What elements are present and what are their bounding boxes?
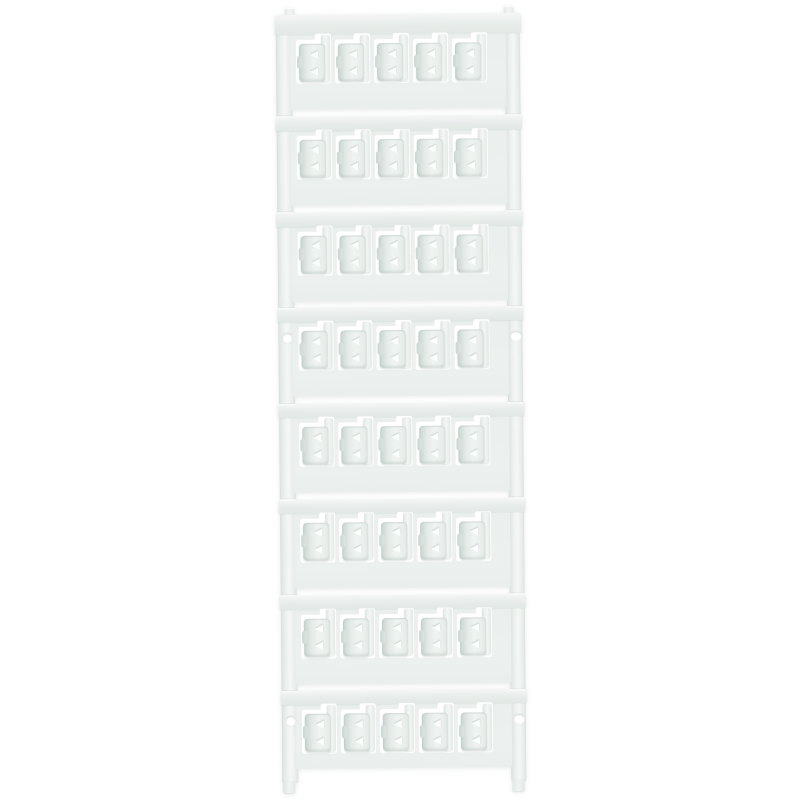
snap-bump bbox=[416, 342, 421, 355]
snap-bump bbox=[340, 534, 345, 547]
detent-notch-icon bbox=[316, 737, 324, 745]
snap-bump bbox=[377, 342, 382, 355]
rail-joint-right bbox=[506, 209, 522, 212]
marker-strip-row bbox=[276, 115, 523, 209]
detent-notch-icon bbox=[316, 720, 324, 728]
detent-notch-icon bbox=[472, 719, 480, 727]
snap-bump bbox=[374, 55, 379, 68]
detent-notch-icon bbox=[315, 642, 323, 650]
marker-tag bbox=[342, 522, 368, 560]
marker-tag bbox=[341, 426, 367, 464]
marker-tag bbox=[305, 714, 331, 752]
snap-bump bbox=[302, 726, 307, 739]
marker-tag bbox=[338, 43, 364, 81]
marker-strip-row bbox=[278, 402, 525, 496]
detent-notch-icon bbox=[390, 258, 398, 266]
mounting-hole-left bbox=[282, 333, 293, 344]
mounting-hole-right bbox=[511, 331, 522, 342]
marker-tag bbox=[302, 427, 328, 465]
snap-bump bbox=[415, 246, 420, 259]
detent-notch-icon bbox=[311, 163, 319, 171]
snap-bump bbox=[375, 151, 380, 164]
detent-notch-icon bbox=[391, 354, 399, 362]
snap-bump bbox=[457, 533, 462, 546]
snap-bump bbox=[298, 247, 303, 260]
marker-strip-row bbox=[275, 19, 522, 113]
marker-tag bbox=[457, 234, 483, 272]
detent-notch-icon bbox=[430, 432, 438, 440]
detent-notch-icon bbox=[353, 529, 361, 537]
mounting-hole-right bbox=[514, 714, 525, 725]
detent-notch-icon bbox=[430, 449, 438, 457]
snap-bump bbox=[337, 247, 342, 260]
rail-joint-left bbox=[282, 690, 298, 693]
detent-notch-icon bbox=[391, 433, 399, 441]
detent-notch-icon bbox=[432, 641, 440, 649]
marker-tag bbox=[382, 617, 408, 655]
snap-bump bbox=[453, 150, 458, 163]
detent-notch-icon bbox=[392, 545, 400, 553]
marker-tag bbox=[460, 617, 486, 655]
snap-bump bbox=[417, 438, 422, 451]
detent-notch-icon bbox=[469, 353, 477, 361]
marker-tag bbox=[416, 43, 442, 81]
detent-notch-icon bbox=[466, 49, 474, 57]
marker-tag bbox=[300, 139, 326, 177]
detent-notch-icon bbox=[389, 145, 397, 153]
marker-tag bbox=[343, 618, 369, 656]
detent-notch-icon bbox=[310, 67, 318, 75]
detent-notch-icon bbox=[469, 449, 477, 457]
rail-joint-left bbox=[278, 307, 294, 310]
detent-notch-icon bbox=[469, 432, 477, 440]
detent-notch-icon bbox=[389, 162, 397, 170]
detent-notch-icon bbox=[467, 162, 475, 170]
mounting-hole-left bbox=[286, 716, 297, 727]
rail-joint-right bbox=[505, 113, 521, 116]
rail-joint-left bbox=[277, 115, 293, 118]
snap-bump bbox=[299, 343, 304, 356]
marker-tag bbox=[299, 44, 325, 82]
snap-bump bbox=[341, 630, 346, 643]
detent-notch-icon bbox=[467, 145, 475, 153]
detent-notch-icon bbox=[394, 737, 402, 745]
detent-notch-icon bbox=[391, 450, 399, 458]
snap-bump bbox=[418, 534, 423, 547]
snap-bump bbox=[376, 247, 381, 260]
marker-tag bbox=[455, 42, 481, 80]
detent-notch-icon bbox=[428, 162, 436, 170]
rail-joint-left bbox=[281, 594, 297, 597]
marker-tag bbox=[340, 235, 366, 273]
detent-notch-icon bbox=[429, 336, 437, 344]
detent-notch-icon bbox=[470, 545, 478, 553]
detent-notch-icon bbox=[350, 146, 358, 154]
marker-tag bbox=[418, 234, 444, 272]
snap-bump bbox=[338, 343, 343, 356]
marker-strip-row bbox=[277, 306, 524, 400]
detent-notch-icon bbox=[390, 337, 398, 345]
marker-tag bbox=[457, 330, 483, 368]
detent-notch-icon bbox=[354, 641, 362, 649]
detent-notch-icon bbox=[355, 737, 363, 745]
rail-joint-right bbox=[508, 400, 524, 403]
detent-notch-icon bbox=[388, 50, 396, 58]
detent-notch-icon bbox=[432, 624, 440, 632]
marker-tag bbox=[380, 426, 406, 464]
snap-bump bbox=[380, 630, 385, 643]
detent-notch-icon bbox=[427, 66, 435, 74]
detent-notch-icon bbox=[314, 546, 322, 554]
snap-bump bbox=[413, 55, 418, 68]
detent-notch-icon bbox=[429, 241, 437, 249]
detent-notch-icon bbox=[431, 545, 439, 553]
detent-notch-icon bbox=[351, 337, 359, 345]
rail-joint-left bbox=[277, 211, 293, 214]
rail-joint-left bbox=[279, 402, 295, 405]
detent-notch-icon bbox=[313, 433, 321, 441]
rail-joint-right bbox=[507, 305, 523, 308]
snap-bump bbox=[302, 630, 307, 643]
snap-bump bbox=[336, 151, 341, 164]
marker-tag bbox=[339, 139, 365, 177]
detent-notch-icon bbox=[310, 50, 318, 58]
marker-tag bbox=[344, 714, 370, 752]
detent-notch-icon bbox=[431, 528, 439, 536]
marker-strip-row bbox=[276, 210, 523, 304]
detent-notch-icon bbox=[394, 720, 402, 728]
marker-tag bbox=[418, 330, 444, 368]
detent-notch-icon bbox=[388, 67, 396, 75]
product-photo bbox=[0, 0, 800, 800]
snap-bump bbox=[296, 56, 301, 69]
snap-bump bbox=[458, 725, 463, 738]
detent-notch-icon bbox=[433, 719, 441, 727]
detent-notch-icon bbox=[355, 720, 363, 728]
detent-notch-icon bbox=[350, 163, 358, 171]
detent-notch-icon bbox=[393, 624, 401, 632]
detent-notch-icon bbox=[392, 528, 400, 536]
rail-joint-right bbox=[508, 496, 524, 499]
marker-tag bbox=[422, 713, 448, 751]
detent-notch-icon bbox=[390, 241, 398, 249]
marker-tag bbox=[417, 138, 443, 176]
marker-tag bbox=[383, 713, 409, 751]
detent-notch-icon bbox=[471, 640, 479, 648]
marker-tag bbox=[377, 43, 403, 81]
snap-bump bbox=[455, 342, 460, 355]
detent-notch-icon bbox=[351, 258, 359, 266]
marker-tag bbox=[379, 330, 405, 368]
marker-strip-row bbox=[279, 498, 526, 592]
marker-tag bbox=[420, 521, 446, 559]
detent-notch-icon bbox=[468, 336, 476, 344]
detent-notch-icon bbox=[427, 49, 435, 57]
snap-bump bbox=[339, 439, 344, 452]
detent-notch-icon bbox=[430, 353, 438, 361]
detent-notch-icon bbox=[352, 433, 360, 441]
rail-joint-left bbox=[280, 498, 296, 501]
rail-joint-right bbox=[510, 688, 526, 691]
marker-tag bbox=[461, 713, 487, 751]
snap-bump bbox=[419, 629, 424, 642]
detent-notch-icon bbox=[313, 450, 321, 458]
marker-tag bbox=[459, 521, 485, 559]
snap-bump bbox=[378, 438, 383, 451]
detent-notch-icon bbox=[472, 736, 480, 744]
marker-tag bbox=[301, 235, 327, 273]
snap-bump bbox=[380, 725, 385, 738]
snap-bump bbox=[297, 152, 302, 165]
snap-bump bbox=[379, 534, 384, 547]
detent-notch-icon bbox=[393, 641, 401, 649]
detent-notch-icon bbox=[313, 354, 321, 362]
detent-notch-icon bbox=[353, 546, 361, 554]
detent-notch-icon bbox=[312, 242, 320, 250]
marker-tag bbox=[381, 522, 407, 560]
snap-bump bbox=[454, 246, 459, 259]
snap-bump bbox=[341, 726, 346, 739]
detent-notch-icon bbox=[311, 146, 319, 154]
detent-notch-icon bbox=[349, 50, 357, 58]
marker-tag bbox=[301, 331, 327, 369]
detent-notch-icon bbox=[470, 528, 478, 536]
detent-notch-icon bbox=[468, 257, 476, 265]
marker-tag bbox=[379, 234, 405, 272]
detent-notch-icon bbox=[352, 354, 360, 362]
detent-notch-icon bbox=[428, 145, 436, 153]
detent-notch-icon bbox=[433, 736, 441, 744]
snap-bump bbox=[456, 437, 461, 450]
detent-notch-icon bbox=[471, 623, 479, 631]
snap-bump bbox=[301, 535, 306, 548]
marker-strip-row bbox=[280, 593, 527, 687]
detent-notch-icon bbox=[466, 66, 474, 74]
detent-notch-icon bbox=[314, 529, 322, 537]
snap-bump bbox=[414, 151, 419, 164]
marker-tag bbox=[421, 617, 447, 655]
marker-tag bbox=[340, 331, 366, 369]
marker-tag bbox=[458, 425, 484, 463]
snap-bump bbox=[419, 725, 424, 738]
snap-bump bbox=[335, 56, 340, 69]
marker-card bbox=[275, 4, 528, 796]
marker-tag bbox=[303, 522, 329, 560]
rail-joint-right bbox=[509, 592, 525, 595]
detent-notch-icon bbox=[468, 240, 476, 248]
marker-tag bbox=[304, 618, 330, 656]
marker-strip-row bbox=[281, 689, 528, 783]
snap-bump bbox=[300, 439, 305, 452]
snap-bump bbox=[452, 54, 457, 67]
detent-notch-icon bbox=[354, 624, 362, 632]
detent-notch-icon bbox=[312, 259, 320, 267]
marker-tag bbox=[378, 139, 404, 177]
marker-tag bbox=[419, 426, 445, 464]
detent-notch-icon bbox=[315, 625, 323, 633]
detent-notch-icon bbox=[352, 450, 360, 458]
detent-notch-icon bbox=[349, 67, 357, 75]
detent-notch-icon bbox=[429, 258, 437, 266]
snap-bump bbox=[458, 629, 463, 642]
detent-notch-icon bbox=[312, 337, 320, 345]
marker-tag bbox=[456, 138, 482, 176]
detent-notch-icon bbox=[351, 241, 359, 249]
